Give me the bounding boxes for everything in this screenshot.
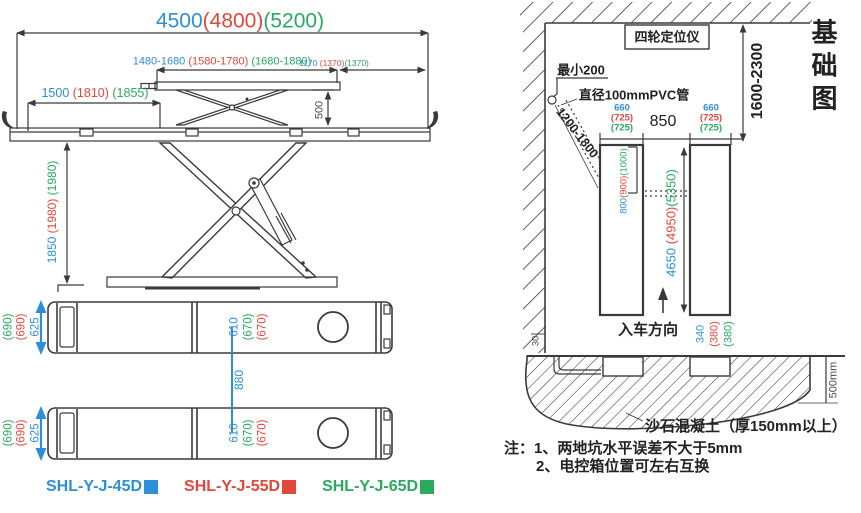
dim-wall-distance-range: 1600-2300	[750, 43, 766, 120]
legend-item-55d: SHL-Y-J-55D	[184, 478, 296, 496]
legend-label-65d: SHL-Y-J-65D	[322, 478, 418, 496]
dim-platform2-inner-65d: (670)	[243, 420, 255, 447]
scissor-lift-installation-drawing: 4500(4800)(5200) 1480-1680 (1580-1780) (…	[0, 0, 861, 513]
dim-pit-left-width-65d: (725)	[611, 123, 633, 133]
dim-overall-45d: 4500	[156, 10, 203, 33]
pvc-pipe-label: 直径100mmPVC管	[579, 89, 690, 102]
note-line-2: 2、电控箱位置可左右互换	[536, 459, 709, 474]
dim-ramp-55d: (1810)	[69, 86, 109, 100]
dim-platform1-width-55d: (690)	[16, 314, 28, 341]
side-view-linework	[2, 33, 438, 292]
dim-pit-head-55d: (900)	[618, 176, 629, 198]
dim-overall-length: 4500(4800)(5200)	[156, 11, 324, 32]
legend-swatch-blue	[144, 480, 158, 494]
dim-pit-tail-45d: 340	[696, 325, 707, 343]
dim-sub-platform-height: 500	[315, 101, 326, 119]
legend-label-55d: SHL-Y-J-55D	[184, 478, 280, 496]
dim-ramp-65d: (1855)	[109, 86, 149, 100]
dim-overall-65d: (5200)	[263, 10, 324, 33]
foundation-title: 基础图	[810, 19, 836, 118]
top-view-blue-dims	[36, 300, 233, 461]
dim-pit-head-65d: (1000)	[618, 148, 629, 175]
legend-label-45d: SHL-Y-J-45D	[46, 478, 142, 496]
legend-swatch-red	[282, 480, 296, 494]
dim-platform2-width-55d: (690)	[16, 420, 28, 447]
drive-in-direction-label: 入车方向	[618, 323, 678, 338]
dim-pit-spacing: 850	[650, 114, 677, 130]
dim-rear-55d: (1370)	[317, 58, 344, 68]
dim-raise-height: 1850 (1980) (1980)	[46, 161, 58, 264]
concrete-note: 沙石混凝土（厚150mm以上）	[645, 419, 847, 434]
dim-rear-65d: (1370)	[344, 58, 369, 68]
dim-ramp-length: 1500 (1810) (1855)	[41, 87, 148, 100]
dim-upper-45d: 1480-1680	[133, 56, 186, 68]
dim-pit-head-length: 800(900)(1000)	[619, 148, 629, 214]
dim-platform2-inner-45d: 610	[229, 423, 241, 442]
dim-platform2-width-45d: 625	[30, 423, 42, 442]
dim-pit-length-45d: 4650	[664, 248, 679, 277]
dim-platform1-width-45d: 625	[30, 317, 42, 336]
dim-ramp-45d: 1500	[41, 86, 69, 100]
dim-platform2-width-65d: (690)	[3, 420, 15, 447]
legend-swatch-green	[420, 480, 434, 494]
dim-raise-45d: 1850	[45, 237, 59, 264]
dim-overall-55d: (4800)	[203, 10, 264, 33]
wheel-aligner-box-label: 四轮定位仪	[634, 31, 699, 44]
dim-track-center-gap: 880	[233, 370, 245, 390]
drawing-linework	[0, 0, 861, 513]
dim-raise-55d: (1980)	[45, 199, 59, 237]
dim-pit-length-55d: (4950)	[664, 207, 679, 248]
top-view-linework	[48, 302, 392, 459]
dim-platform1-inner-45d: 610	[229, 317, 241, 336]
dim-raise-65d: (1980)	[45, 161, 59, 199]
dim-upper-55d: (1580-1780)	[185, 56, 248, 68]
dim-pit-length-65d: (5350)	[664, 169, 679, 207]
dim-rear-45d: 1170	[299, 58, 317, 68]
dim-pit-tail-65d: (380)	[724, 321, 735, 347]
dim-upper-platform-range: 1480-1680 (1580-1780) (1680-1880)	[133, 57, 312, 68]
dim-rear-offset: 1170 (1370)(1370)	[299, 59, 369, 68]
dim-section-depth: 500mm	[829, 362, 840, 399]
dim-platform1-width-65d: (690)	[3, 314, 15, 341]
dim-platform2-inner-55d: (670)	[257, 420, 269, 447]
model-legend: SHL-Y-J-45D SHL-Y-J-55D SHL-Y-J-65D	[46, 478, 434, 496]
dim-pit-tail-55d: (380)	[710, 321, 721, 347]
min-clearance-label: 最小200	[557, 64, 605, 77]
dim-pit-right-width-65d: (725)	[700, 123, 722, 133]
legend-item-65d: SHL-Y-J-65D	[322, 478, 434, 496]
dim-wall-edge: 30	[531, 336, 541, 347]
dim-pit-length: 4650 (4950)(5350)	[665, 169, 678, 277]
legend-item-45d: SHL-Y-J-45D	[46, 478, 158, 496]
note-line-1: 注：1、两地坑水平误差不大于5mm	[504, 441, 742, 456]
dim-pit-head-45d: 800	[618, 198, 629, 214]
dim-platform1-inner-65d: (670)	[243, 314, 255, 341]
dim-platform1-inner-55d: (670)	[257, 314, 269, 341]
